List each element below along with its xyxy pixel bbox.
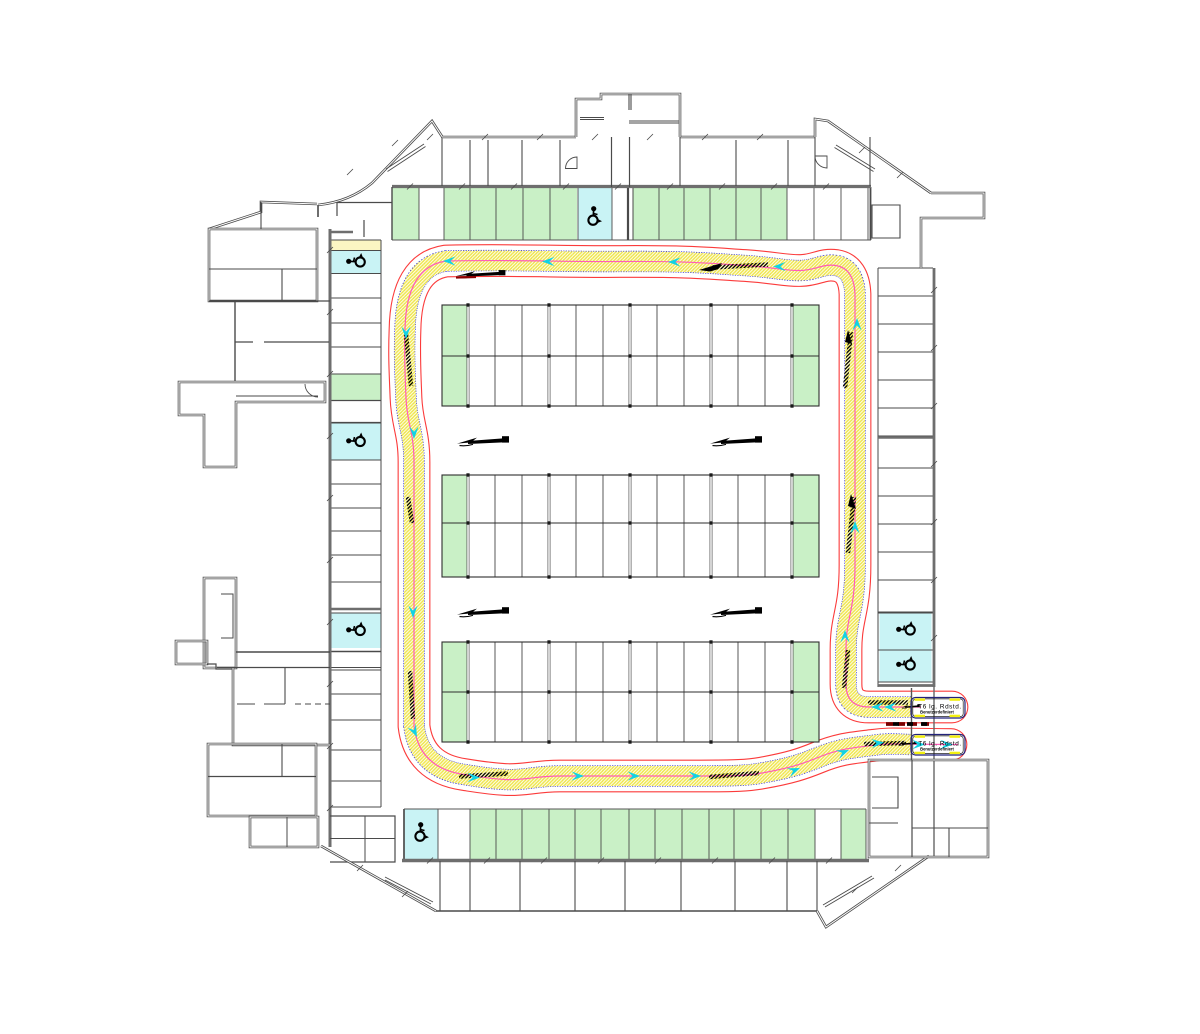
svg-text:Benutzerdefiniert: Benutzerdefiniert [920, 746, 954, 751]
svg-text:Benutzerdefiniert: Benutzerdefiniert [920, 709, 954, 714]
